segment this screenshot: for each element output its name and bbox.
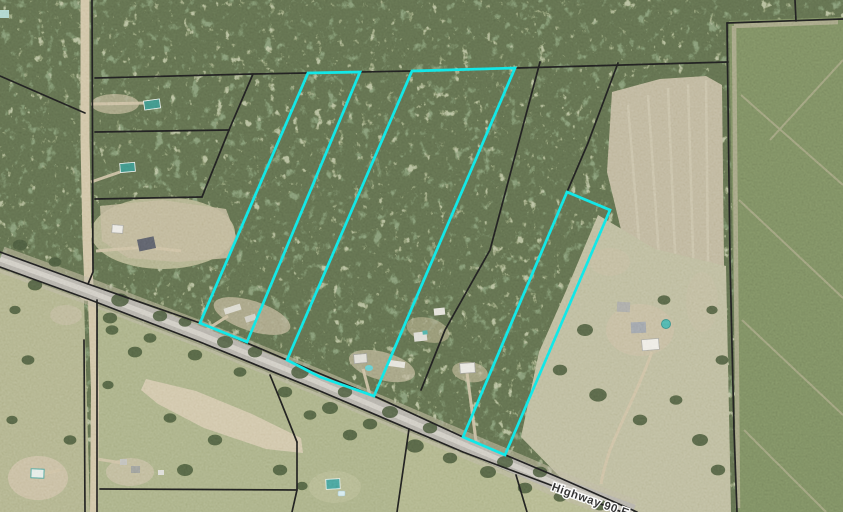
map-canvas[interactable]: Highway 90 E [0,0,843,512]
aerial-parcel-map[interactable]: Highway 90 E [0,0,843,512]
photo-grain-soft [0,0,843,512]
